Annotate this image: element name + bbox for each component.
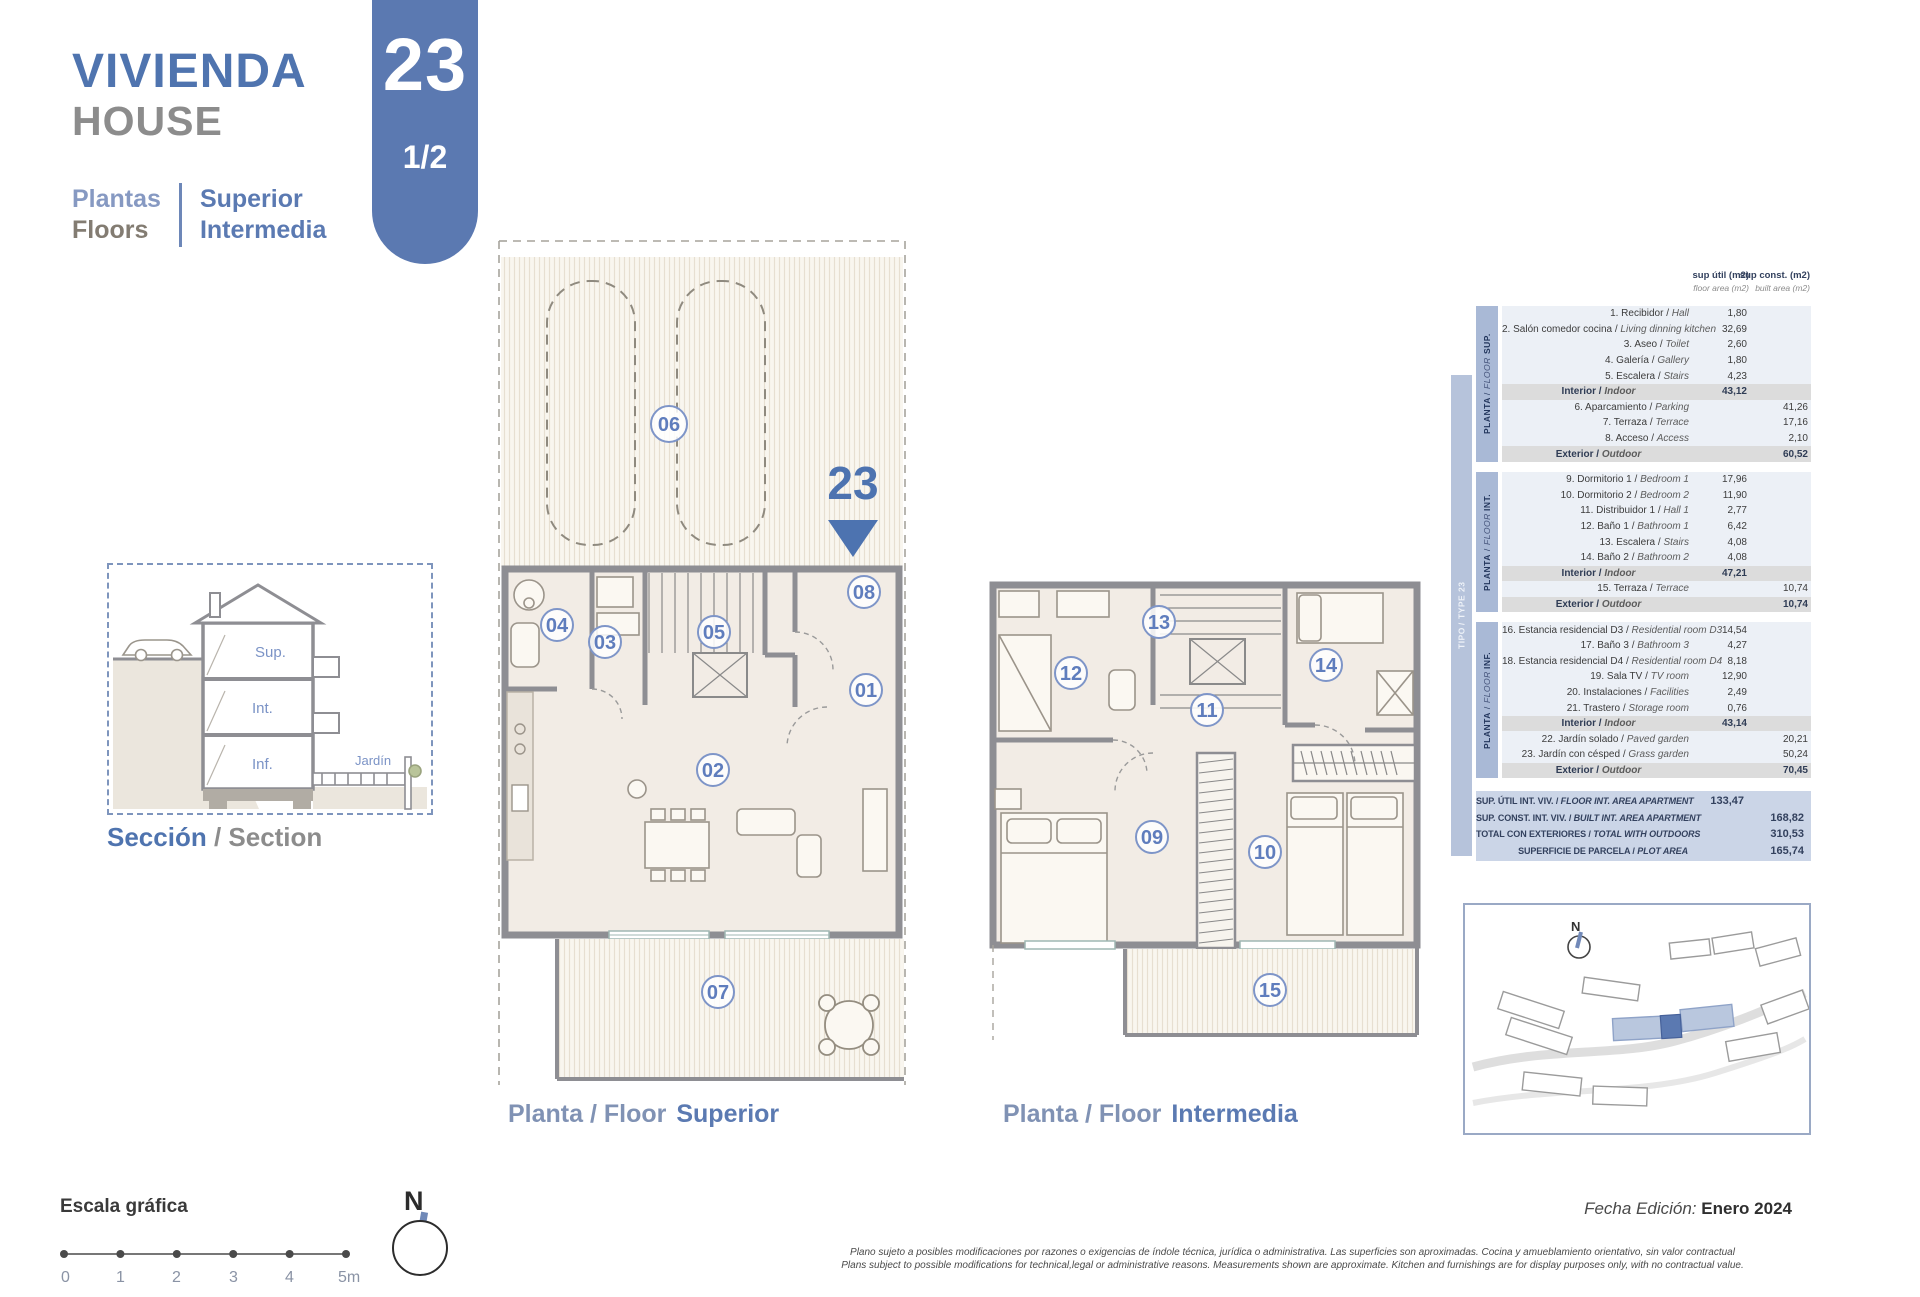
north-compass-icon: N [388,1186,458,1280]
floors-label-en: Floors [72,215,161,246]
room-badge: 02 [696,753,730,787]
scale-tick-labels: 0 1 2 3 4 5m [61,1269,360,1286]
table-row: Exterior / Outdoor70,45 [1502,763,1811,779]
north-icon: N [1568,919,1590,958]
floor-bar-es: PLANTA [1482,398,1492,435]
room-name: 13. Escalera / Stairs [1502,537,1695,548]
built-area-value: 50,24 [1750,749,1811,760]
table-section: 9. Dormitorio 1 / Bedroom 117,9610. Dorm… [1502,472,1811,612]
room-badge: 10 [1248,835,1282,869]
room-badge: 13 [1142,605,1176,639]
room-name: 14. Baño 2 / Bathroom 2 [1502,552,1695,563]
built-area-value: 310,53 [1747,828,1807,840]
floors-label-es: Plantas [72,184,161,215]
room-name: Exterior / Outdoor [1502,599,1695,610]
room-badge: 08 [847,575,881,609]
svg-text:1: 1 [116,1269,125,1286]
room-name: 11. Distribuidor 1 / Hall 1 [1502,505,1695,516]
table-row: 14. Baño 2 / Bathroom 24,08 [1502,550,1811,566]
floor-area-value: 12,90 [1695,671,1750,682]
north-letter: N [1571,919,1580,934]
caption-prefix: Planta / Floor [1003,1100,1161,1128]
column-header-const: sup const. (m2) built area (m2) [1740,270,1810,294]
table-row: 22. Jardín solado / Paved garden20,21 [1502,731,1811,747]
sofa [737,809,795,835]
built-area-value: 2,10 [1750,433,1811,444]
built-area-value: 10,74 [1750,583,1811,594]
room-name: SUP. CONST. INT. VIV. / BUILT INT. AREA … [1476,813,1692,823]
room-name: 22. Jardín solado / Paved garden [1502,734,1695,745]
room-name: 17. Baño 3 / Bathroom 3 [1502,640,1695,651]
disclaimer-es: Plano sujeto a posibles modificaciones p… [795,1246,1790,1259]
floor-area-value: 2,49 [1695,687,1750,698]
floor-area-value: 47,21 [1695,568,1750,579]
svg-text:2: 2 [172,1269,181,1286]
label-sup: Sup. [255,644,286,661]
room-badge: 01 [849,673,883,707]
built-area-value: 165,74 [1747,845,1807,857]
table-row: 12. Baño 1 / Bathroom 16,42 [1502,519,1811,535]
room-badge: 03 [588,625,622,659]
table-row: Interior / Indoor43,12 [1502,384,1811,400]
table-row: Interior / Indoor43,14 [1502,716,1811,732]
built-area-value: 10,74 [1750,599,1811,610]
plant-icon [409,765,421,777]
floors-value-intermedia: Intermedia [200,215,326,246]
caption-separator: / [207,822,229,852]
room-badge: 04 [540,608,574,642]
table-row: 8. Acceso / Access2,10 [1502,431,1811,447]
table-row: 3. Aseo / Toilet2,60 [1502,337,1811,353]
room-badge: 09 [1135,820,1169,854]
room-name: Exterior / Outdoor [1502,449,1695,460]
room-badge: 12 [1054,656,1088,690]
floor-bar-tag: INF. [1482,651,1492,668]
room-name: 1. Recibidor / Hall [1502,308,1695,319]
type-label-en: TYPE [1457,595,1467,619]
room-badge: 14 [1309,648,1343,682]
floor-bar-tag: INT. [1482,493,1492,510]
room-name: 9. Dormitorio 1 / Bedroom 1 [1502,474,1695,485]
table-section: 16. Estancia residencial D3 / Residentia… [1502,622,1811,778]
room-name: SUP. ÚTIL INT. VIV. / FLOOR INT. AREA AP… [1476,796,1692,806]
room-name: Interior / Indoor [1502,718,1695,729]
car-icon [123,640,191,661]
floor-bar-en: FLOOR [1482,671,1492,703]
floor-bar-inf: PLANTA / FLOOR INF. [1476,622,1498,778]
room-name: 21. Trastero / Storage room [1502,703,1695,714]
section-drawing-box: Sup. Int. Inf. Jardín [107,563,433,815]
table-row: 18. Estancia residencial D4 / Residentia… [1502,653,1811,669]
table-row: 19. Sala TV / TV room12,90 [1502,669,1811,685]
table-row: Exterior / Outdoor10,74 [1502,597,1811,613]
floors-label: Plantas Floors [72,184,161,246]
room-badge: 11 [1190,693,1224,727]
room-badge: 05 [697,615,731,649]
floor-bar-sup: PLANTA / FLOOR SUP. [1476,306,1498,462]
floor-bar-en: FLOOR [1482,357,1492,389]
edition-value: Enero 2024 [1701,1199,1792,1218]
built-area-value: 168,82 [1747,812,1807,824]
disclaimer: Plano sujeto a posibles modificaciones p… [795,1246,1790,1272]
floors-block: Plantas Floors Superior Intermedia [72,183,326,247]
area-table-summary: SUP. ÚTIL INT. VIV. / FLOOR INT. AREA AP… [1476,791,1811,861]
label-inf: Inf. [252,756,273,773]
table-row: 1. Recibidor / Hall1,80 [1502,306,1811,322]
floor-area-value: 32,69 [1695,324,1750,335]
svg-text:3: 3 [229,1269,238,1286]
room-name: 19. Sala TV / TV room [1502,671,1695,682]
room-badge: 15 [1253,973,1287,1007]
disclaimer-en: Plans subject to possible modifications … [795,1259,1790,1272]
built-area-value: 70,45 [1750,765,1811,776]
type-label-num: 23 [1457,582,1467,592]
area-table-rows: 1. Recibidor / Hall1,802. Salón comedor … [1502,306,1811,788]
room-name: 4. Galería / Gallery [1502,355,1695,366]
table-row: 15. Terraza / Terrace10,74 [1502,581,1811,597]
room-name: SUPERFICIE DE PARCELA / PLOT AREA [1476,846,1692,856]
floor-area-value: 4,27 [1695,640,1750,651]
unit-23-location [1660,1014,1682,1038]
built-area-value: 60,52 [1750,449,1811,460]
svg-text:4: 4 [285,1269,294,1286]
table-row: 4. Galería / Gallery1,80 [1502,353,1811,369]
table-row: Interior / Indoor47,21 [1502,566,1811,582]
table-row: 21. Trastero / Storage room0,76 [1502,700,1811,716]
area-table: sup útil (m2) floor area (m2) sup const.… [1451,270,1811,864]
edition-date: Fecha Edición: Enero 2024 [1390,1199,1792,1219]
room-badge: 07 [701,975,735,1009]
house-number: 23 [372,0,478,107]
house-number-badge: 23 1/2 [372,0,478,264]
table-row: 7. Terraza / Terrace17,16 [1502,415,1811,431]
floor-area-value: 4,08 [1695,537,1750,548]
page-title-es: VIVIENDA [72,44,307,99]
scale-bar: Escala gráfica 0 1 2 3 4 5m [60,1196,400,1297]
svg-text:5m: 5m [338,1269,360,1286]
summary-row: SUP. CONST. INT. VIV. / BUILT INT. AREA … [1476,810,1811,827]
floor-area-value: 43,14 [1695,718,1750,729]
caption-prefix: Planta / Floor [508,1100,666,1128]
room-name: 20. Instalaciones / Facilities [1502,687,1695,698]
svg-text:0: 0 [61,1269,70,1286]
room-name: 16. Estancia residencial D3 / Residentia… [1502,625,1695,636]
section-caption-es: Sección [107,822,207,852]
chimney [210,593,220,617]
room-name: 18. Estancia residencial D4 / Residentia… [1502,656,1695,667]
terrace-table [819,995,879,1055]
room-badge: 06 [650,405,688,443]
floor-area-value: 17,96 [1695,474,1750,485]
floor-area-value: 11,90 [1695,490,1750,501]
room-name: 23. Jardín con césped / Grass garden [1502,749,1695,760]
room-name: 8. Acceso / Access [1502,433,1695,444]
floor-plan-superior: 23 [497,237,907,1087]
plan-caption-superior: Planta / FloorSuperior [508,1100,779,1129]
room-name: Interior / Indoor [1502,386,1695,397]
section-drawing: Sup. Int. Inf. Jardín [109,565,431,813]
room-name: 6. Aparcamiento / Parking [1502,402,1695,413]
table-row: 17. Baño 3 / Bathroom 34,27 [1502,638,1811,654]
room-name: 2. Salón comedor cocina / Living dinning… [1502,324,1695,335]
room-name: 15. Terraza / Terrace [1502,583,1695,594]
floor-area-value: 1,80 [1695,355,1750,366]
table-row: 11. Distribuidor 1 / Hall 12,77 [1502,503,1811,519]
summary-row: TOTAL CON EXTERIORES / TOTAL WITH OUTDOO… [1476,826,1811,843]
room-name: Exterior / Outdoor [1502,765,1695,776]
scale-bar-graphic: 0 1 2 3 4 5m [60,1240,390,1292]
table-section: 1. Recibidor / Hall1,802. Salón comedor … [1502,306,1811,462]
floor-area-value: 133,47 [1692,795,1747,807]
built-area-value: 20,21 [1750,734,1811,745]
floor-bar-es: PLANTA [1482,712,1492,749]
caption-name: Intermedia [1171,1100,1297,1128]
floor-plan-intermedia [985,575,1425,1045]
table-row: 6. Aparcamiento / Parking41,26 [1502,400,1811,416]
page-title-en: HOUSE [72,98,223,145]
built-area-value: 41,26 [1750,402,1811,413]
caption-name: Superior [676,1100,779,1128]
column-header-const-es: sup const. (m2) [1740,270,1810,282]
wardrobe [1293,745,1415,781]
site-plan: N [1465,905,1809,1133]
section-caption: Sección / Section [107,822,322,853]
table-row: Exterior / Outdoor60,52 [1502,446,1811,462]
built-area-value: 17,16 [1750,417,1811,428]
table-row: 2. Salón comedor cocina / Living dinning… [1502,322,1811,338]
label-jardin: Jardín [355,753,391,768]
floor-area-value: 6,42 [1695,521,1750,532]
type-label-es: TIPO [1457,628,1467,650]
section-caption-en: Section [228,822,322,852]
kitchen-counter [507,692,533,860]
room-name: 3. Aseo / Toilet [1502,339,1695,350]
room-name: TOTAL CON EXTERIORES / TOTAL WITH OUTDOO… [1476,829,1692,839]
floor-area-value: 2,60 [1695,339,1750,350]
edition-label: Fecha Edición: [1584,1199,1696,1218]
floor-area-value: 14,54 [1695,625,1750,636]
floor-area-value: 43,12 [1695,386,1750,397]
floor-bar-tag: SUP. [1482,334,1492,355]
table-row: 5. Escalera / Stairs4,23 [1502,368,1811,384]
floor-area-value: 1,80 [1695,308,1750,319]
table-row: 10. Dormitorio 2 / Bedroom 211,90 [1502,488,1811,504]
scale-bar-title: Escala gráfica [60,1196,400,1218]
table-row: 23. Jardín con césped / Grass garden50,2… [1502,747,1811,763]
floor-area-value: 0,76 [1695,703,1750,714]
room-name: 12. Baño 1 / Bathroom 1 [1502,521,1695,532]
floor-area-value: 4,08 [1695,552,1750,563]
highlight-buildings [1612,1004,1734,1040]
room-name: 10. Dormitorio 2 / Bedroom 2 [1502,490,1695,501]
floor-bar-es: PLANTA [1482,554,1492,591]
floor-area-value: 2,77 [1695,505,1750,516]
floor-bar-en: FLOOR [1482,513,1492,545]
slatted-partition [1197,753,1235,948]
summary-row: SUPERFICIE DE PARCELA / PLOT AREA165,74 [1476,843,1811,860]
unit-marker-number: 23 [827,457,878,509]
sheet-page-number: 1/2 [372,139,478,176]
table-row: 20. Instalaciones / Facilities2,49 [1502,685,1811,701]
summary-row: SUP. ÚTIL INT. VIV. / FLOOR INT. AREA AP… [1476,793,1811,810]
floors-values: Superior Intermedia [200,184,326,246]
floor-bar-int: PLANTA / FLOOR INT. [1476,472,1498,612]
plan-caption-intermedia: Planta / FloorIntermedia [1003,1100,1298,1129]
table-row: 13. Escalera / Stairs4,08 [1502,534,1811,550]
type-label-bar: TIPO / TYPE 23 [1451,375,1472,856]
compass-circle [392,1220,448,1276]
floor-area-value: 4,23 [1695,371,1750,382]
column-header-const-en: built area (m2) [1740,282,1810,294]
floor-area-value: 8,18 [1695,656,1750,667]
room-name: 5. Escalera / Stairs [1502,371,1695,382]
site-plan-box: N [1463,903,1811,1135]
table-row: 16. Estancia residencial D3 / Residentia… [1502,622,1811,638]
room-name: Interior / Indoor [1502,568,1695,579]
label-int: Int. [252,700,273,717]
tv-sideboard [863,789,887,871]
floors-value-superior: Superior [200,184,326,215]
room-name: 7. Terraza / Terrace [1502,417,1695,428]
table-row: 9. Dormitorio 1 / Bedroom 117,96 [1502,472,1811,488]
divider [179,183,182,247]
